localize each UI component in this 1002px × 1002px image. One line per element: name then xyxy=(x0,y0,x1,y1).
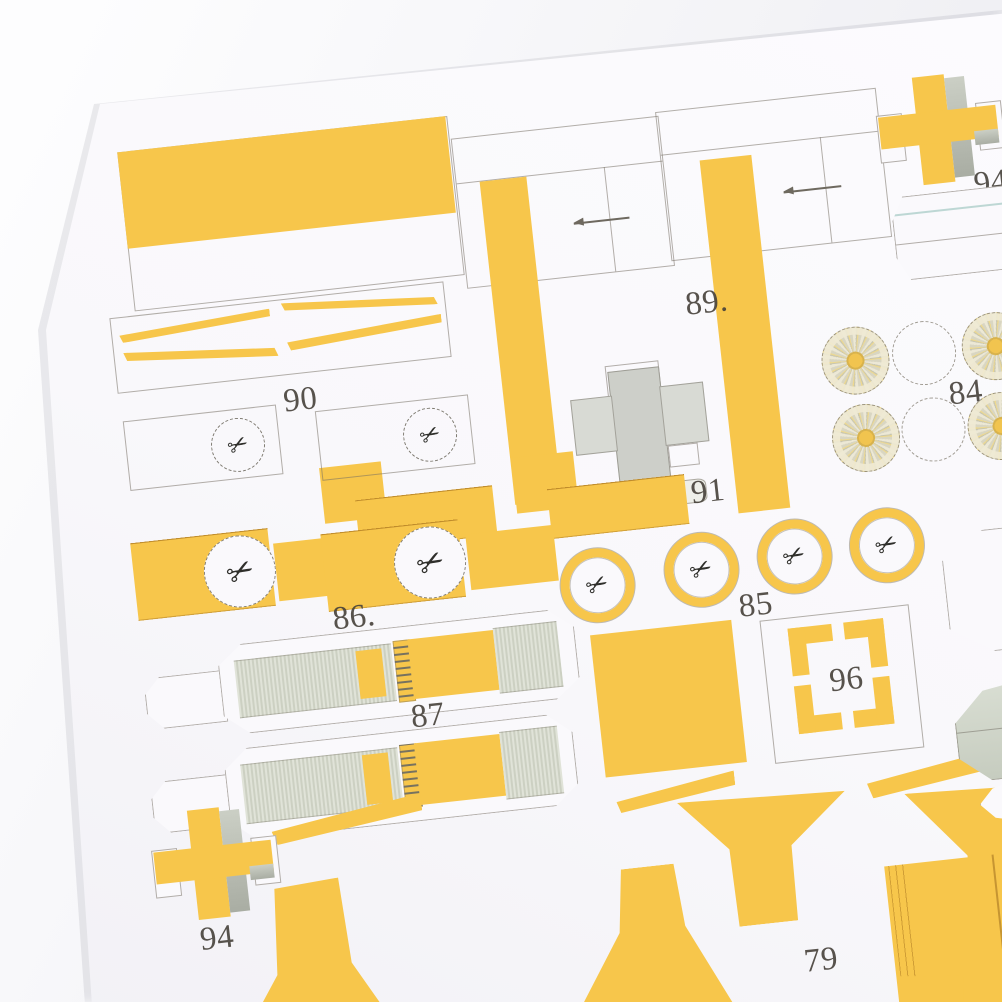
barrel-ribbed-section xyxy=(499,726,564,800)
barrel-ribbed-section xyxy=(493,621,564,694)
scissors-icon: ✂ xyxy=(871,529,903,562)
gray-flap xyxy=(659,382,709,446)
part-79-label: 79 xyxy=(802,942,839,979)
barrel-yellow-tab xyxy=(355,648,386,699)
barrel-yellow-section xyxy=(414,734,506,805)
barrel-nose xyxy=(143,670,228,730)
part-89-label: 89. xyxy=(684,284,730,321)
scissors-icon: ✂ xyxy=(415,419,444,450)
spoked-wheel xyxy=(829,400,904,475)
barrel-yellow-section xyxy=(407,630,499,699)
glue-arrow-icon xyxy=(784,185,842,193)
part-84-label: 84 xyxy=(947,375,984,412)
fold-line xyxy=(992,855,1002,1002)
cut-ring: ✂ xyxy=(661,529,743,611)
hexagonal-part-outline xyxy=(939,516,1002,656)
spoked-wheel xyxy=(818,323,893,398)
small-yellow-strip xyxy=(900,976,964,1002)
scissors-icon: ✂ xyxy=(223,429,252,460)
fold-line xyxy=(661,131,880,156)
yellow-square-part xyxy=(590,620,747,778)
funnel-flare xyxy=(555,859,735,1002)
part-89-panel xyxy=(655,88,892,261)
gray-flap xyxy=(570,396,618,456)
barrel-yellow-tab xyxy=(362,752,393,805)
fold-tab xyxy=(668,442,700,467)
scissors-icon: ✂ xyxy=(410,542,449,583)
fold-line xyxy=(820,137,833,242)
part-96-label: 96 xyxy=(828,662,865,699)
scissors-icon: ✂ xyxy=(220,551,259,592)
part-86-white-box: ✂ xyxy=(123,405,284,491)
part-86-block xyxy=(465,525,559,590)
cut-circle: ✂ xyxy=(400,405,460,465)
part-94-bottom-label: 94 xyxy=(198,920,235,957)
cross-shading xyxy=(249,864,274,881)
scissors-icon: ✂ xyxy=(686,553,718,586)
funnel-flare xyxy=(677,784,858,932)
sheet-content: 90 89. 94 xyxy=(100,0,1002,1002)
part-86-white-box: ✂ xyxy=(315,394,476,480)
cut-ring: ✂ xyxy=(846,504,928,586)
part-85-label: 85 xyxy=(737,587,774,624)
cut-circle: ✂ xyxy=(208,415,268,475)
cross-shading xyxy=(974,129,999,146)
fold-line xyxy=(957,714,1002,734)
glue-arrow-icon xyxy=(574,217,630,225)
part-91-label: 91 xyxy=(689,474,726,511)
gray-panel xyxy=(607,366,671,485)
photo-backdrop: 90 89. 94 xyxy=(0,0,1002,1002)
scissors-icon: ✂ xyxy=(582,569,614,602)
scissors-icon: ✂ xyxy=(779,540,811,573)
part-90-label: 90 xyxy=(282,382,319,419)
fold-line xyxy=(896,210,1002,245)
part-94-cross xyxy=(147,802,283,929)
